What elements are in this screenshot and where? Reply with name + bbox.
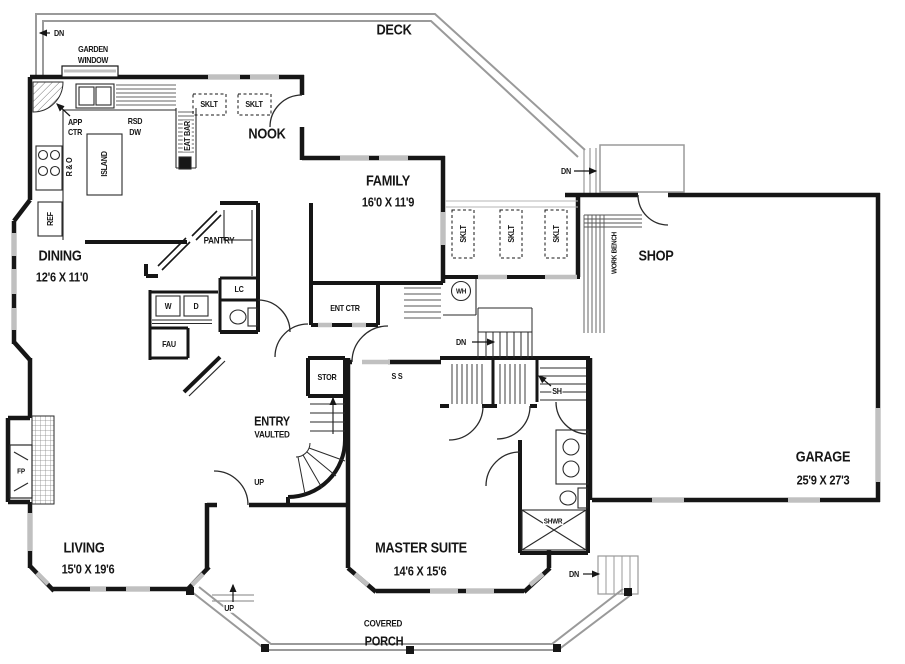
app-ctr-label-1: APP — [68, 118, 82, 127]
hall-lines — [445, 201, 578, 207]
work-bench-label: WORK BENCH — [610, 231, 618, 275]
range-oven-label: R & O — [65, 158, 74, 177]
stair-label-dn-shop: DN — [560, 167, 572, 176]
ent-ctr-label: ENT CTR — [330, 304, 360, 313]
fireplace — [10, 416, 54, 504]
interior-walls — [85, 203, 590, 553]
room-label-garage: GARAGE — [796, 450, 850, 465]
rsd-dw-label-1: RSD — [128, 117, 142, 126]
skylight-label-hall-2: SKLT — [507, 224, 516, 243]
stair-label-up-entry: UP — [253, 478, 264, 487]
windows — [14, 77, 878, 591]
shelf-label: SH — [551, 387, 562, 396]
room-note-entry: VAULTED — [254, 430, 289, 440]
floor-plan-drawing — [0, 0, 905, 664]
room-dims-garage: 25'9 X 27'3 — [797, 474, 850, 487]
water-heater-label: WH — [456, 287, 466, 295]
storage-label: STOR — [317, 373, 338, 382]
room-dims-family: 16'0 X 11'9 — [362, 196, 414, 209]
room-label-living: LIVING — [64, 541, 105, 556]
master-closets — [452, 364, 586, 404]
garden-window-label-1: GARDEN — [78, 45, 108, 54]
shower-label: SHWR — [543, 517, 563, 525]
garden-window-label-2: WINDOW — [78, 56, 108, 65]
deck-outline — [36, 14, 684, 193]
room-label-pantry: PANTRY — [204, 236, 235, 246]
room-label-family: FAMILY — [366, 174, 410, 189]
room-dims-living: 15'0 X 19'6 — [62, 563, 115, 576]
stair-label-dn-deck: DN — [53, 29, 65, 38]
room-label-shop: SHOP — [638, 249, 673, 264]
eat-bar-label: EAT BAR — [183, 120, 192, 151]
exterior-walls — [8, 75, 880, 592]
annotation-arrows — [40, 33, 599, 602]
kitchen-fixtures — [33, 82, 196, 240]
room-label-deck: DECK — [376, 23, 411, 38]
stair-label-dn-porch: DN — [568, 570, 580, 579]
porch-label-2: PORCH — [365, 635, 404, 648]
dryer-label: D — [194, 302, 199, 311]
family-steps — [404, 288, 441, 318]
room-label-entry: ENTRY — [254, 415, 290, 428]
stair-label-dn-hall: DN — [455, 338, 467, 347]
fireplace-label: FP — [16, 467, 25, 475]
porch-label-1: COVERED — [364, 619, 402, 629]
washer-label: W — [165, 302, 172, 311]
bath-fixtures — [522, 430, 588, 550]
room-label-nook: NOOK — [248, 127, 285, 142]
entry-stairs — [296, 398, 345, 494]
ss-label: S S — [392, 372, 403, 381]
skylight-label-nook-1: SKLT — [200, 100, 217, 109]
app-ctr-label-2: CTR — [68, 128, 82, 137]
room-dims-master: 14'6 X 15'6 — [394, 565, 447, 578]
garden-window-bay — [62, 66, 118, 77]
skylight-label-hall-1: SKLT — [459, 224, 468, 243]
skylight-label-nook-2: SKLT — [245, 100, 262, 109]
refrigerator-label: REF — [46, 212, 55, 226]
furnace-label: FAU — [162, 340, 176, 349]
hall-stairs — [478, 308, 532, 358]
room-label-dining: DINING — [38, 249, 81, 264]
rsd-dw-label-2: DW — [129, 128, 141, 137]
island-label: ISLAND — [100, 151, 109, 176]
room-label-master: MASTER SUITE — [375, 541, 467, 556]
water-heater — [443, 279, 476, 315]
room-dims-dining: 12'6 X 11'0 — [36, 271, 88, 284]
floor-plan-canvas: DECK DN GARDEN WINDOW SKLT SKLT NOOK APP… — [0, 0, 905, 664]
stair-label-up-porch: UP — [223, 604, 234, 613]
skylight-label-hall-3: SKLT — [552, 224, 561, 243]
linen-cabinet-label: LC — [234, 285, 243, 294]
